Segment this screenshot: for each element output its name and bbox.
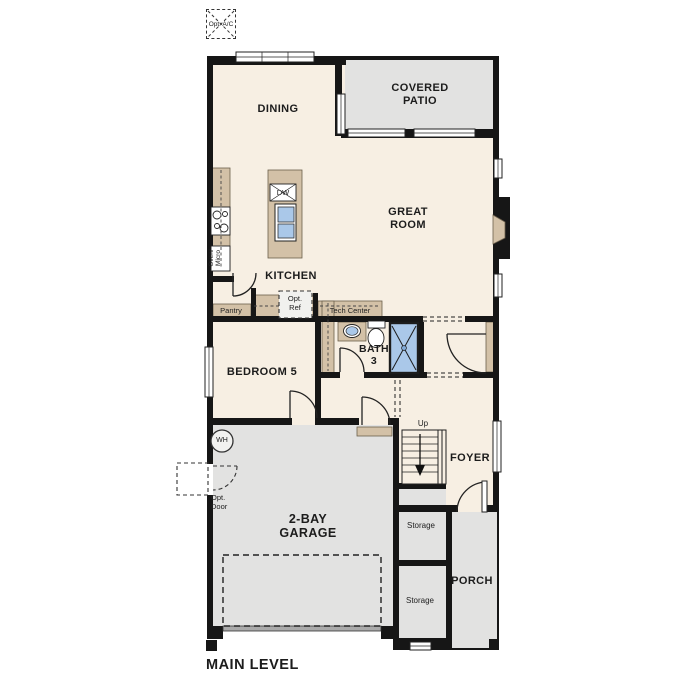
storage1-label: Storage [391, 521, 451, 530]
bath-vanity-sink [344, 325, 361, 338]
garage-label: 2-BAY GARAGE [248, 512, 368, 541]
great-room-label: GREAT ROOM [358, 206, 458, 231]
cooktop [211, 207, 230, 235]
covered-patio-label: COVERED PATIO [370, 82, 470, 107]
kitchen-label: KITCHEN [241, 270, 341, 283]
tech-center-label: Tech Center [315, 307, 385, 316]
dw-label: DW [268, 189, 298, 198]
up-label: Up [408, 419, 438, 428]
bedroom5-label: BEDROOM 5 [192, 366, 332, 379]
wh-label: WH [208, 437, 236, 445]
pantry-label: Pantry [206, 307, 256, 316]
entry-door-leaf [482, 481, 487, 512]
opt-ref-label: Opt. Ref [275, 295, 315, 312]
floor-plan-canvas: Opt. A/C DINING COVERED PATIO GREAT ROOM… [0, 0, 687, 687]
oven-micro-label: Oven/ Micro [208, 242, 232, 274]
bath3-label: BATH 3 [344, 343, 404, 367]
garage-door [223, 626, 381, 631]
foyer-label: FOYER [430, 452, 510, 465]
dining-label: DINING [228, 103, 328, 116]
porch-label: PORCH [432, 575, 512, 588]
main-level-title: MAIN LEVEL [206, 657, 366, 674]
opt-door-label: Opt. Door [211, 494, 247, 511]
storage2-label: Storage [390, 596, 450, 605]
opt-ac-box: Opt. A/C [206, 9, 236, 39]
opt-ac-label: Opt. A/C [209, 21, 234, 28]
kitchen-sink [275, 204, 296, 241]
